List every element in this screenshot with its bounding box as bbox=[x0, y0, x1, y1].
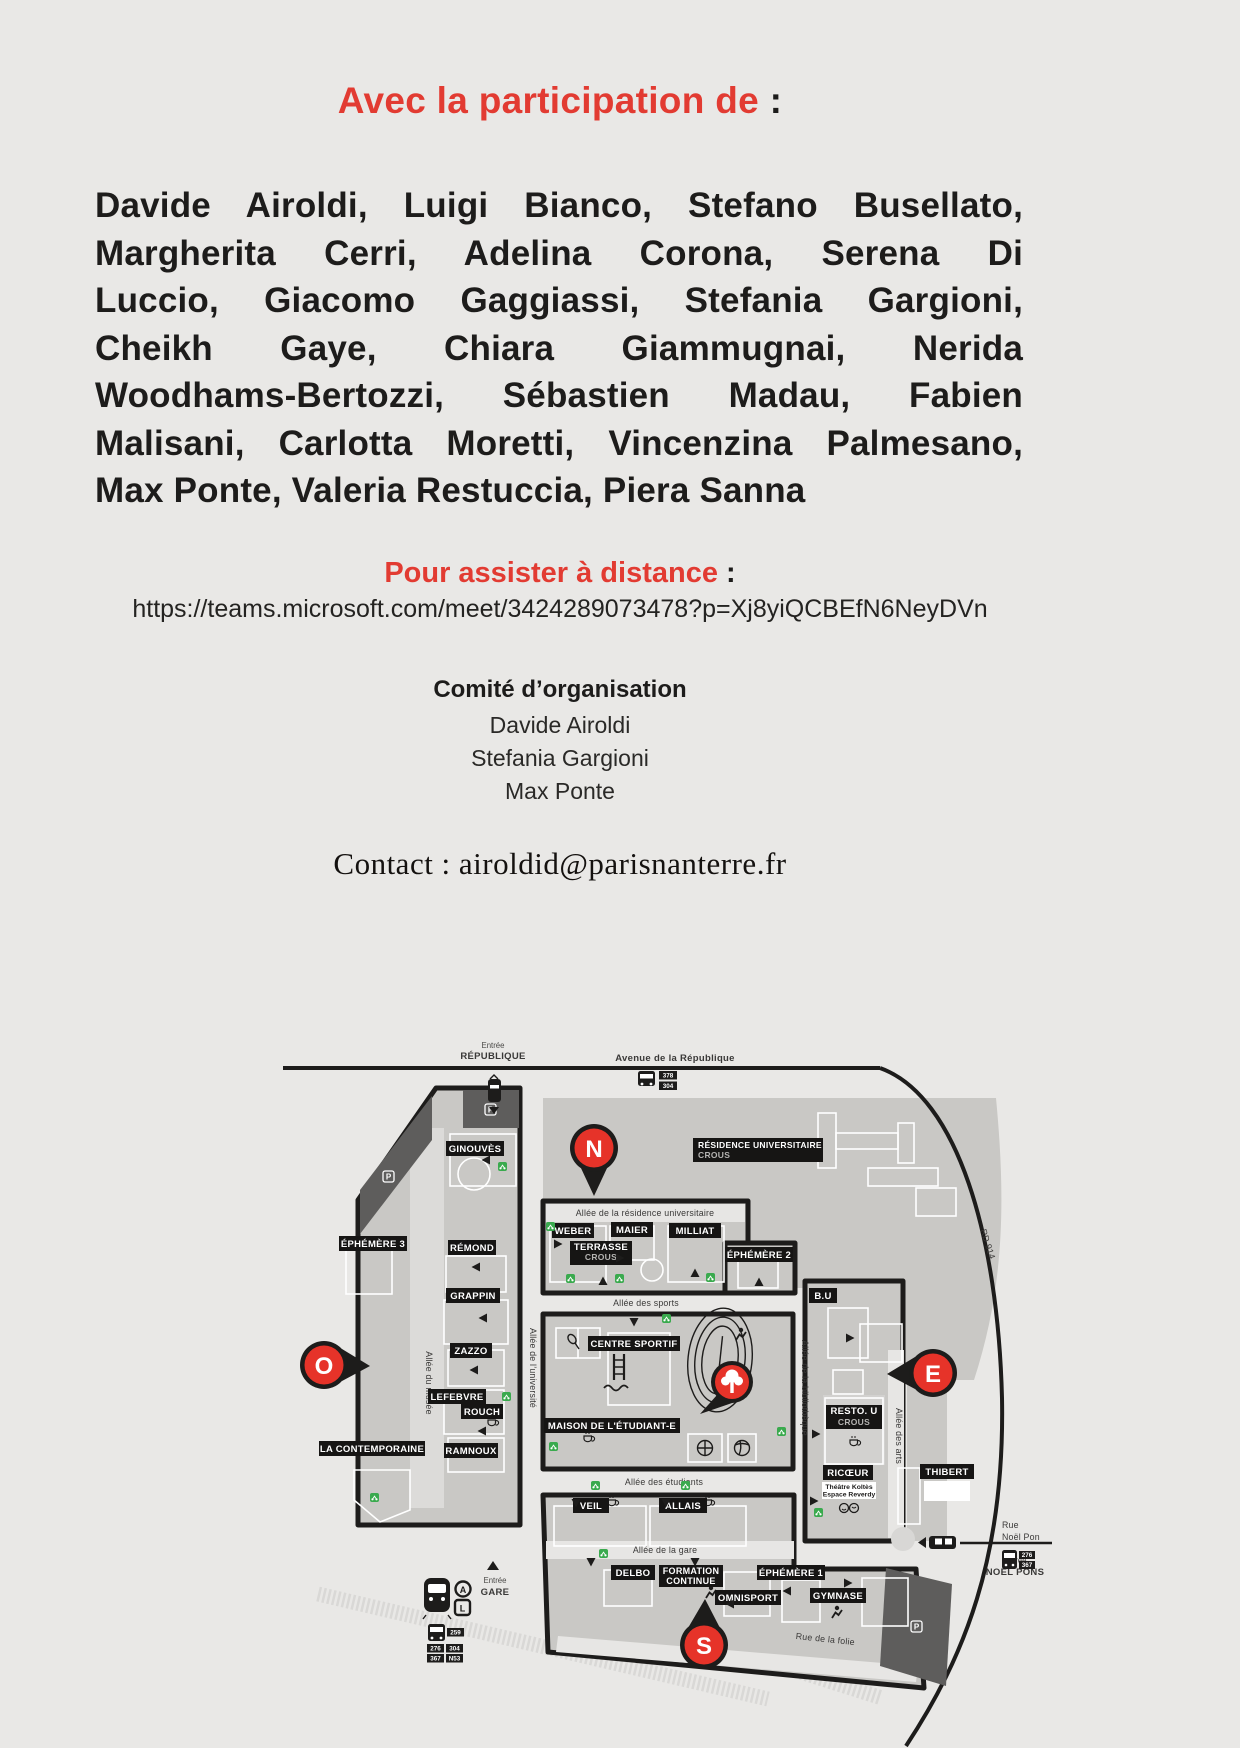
building-label-zazzo: ZAZZO bbox=[450, 1343, 492, 1358]
building-label-bu: B.U bbox=[809, 1288, 837, 1303]
svg-text:ZAZZO: ZAZZO bbox=[454, 1346, 487, 1357]
svg-text:N53: N53 bbox=[449, 1656, 461, 1663]
building-label-ephemere2: ÉPHÉMÈRE 2 bbox=[725, 1247, 793, 1262]
svg-text:FORMATION: FORMATION bbox=[663, 1566, 720, 1576]
svg-text:L: L bbox=[460, 1604, 466, 1614]
building-label-maier: MAIER bbox=[611, 1222, 653, 1237]
building-label-residence-crous: RÉSIDENCE UNIVERSITAIRECROUS bbox=[693, 1138, 823, 1162]
svg-text:MAIER: MAIER bbox=[616, 1225, 648, 1236]
svg-text:ÉPHÉMÈRE 2: ÉPHÉMÈRE 2 bbox=[727, 1250, 791, 1261]
participants-line: Luccio, Giacomo Gaggiassi, Stefania Garg… bbox=[95, 277, 1023, 325]
street-avenue-republique: Avenue de la République bbox=[615, 1053, 735, 1064]
svg-text:RÉSIDENCE UNIVERSITAIRE: RÉSIDENCE UNIVERSITAIRE bbox=[698, 1140, 822, 1150]
street-allee-musee: Allée du musée bbox=[424, 1351, 434, 1414]
participants-line: Cheikh Gaye, Chiara Giammugnai, Nerida bbox=[95, 325, 1023, 373]
svg-text:ROUCH: ROUCH bbox=[464, 1407, 500, 1418]
page-title: Avec la participation de : bbox=[95, 80, 1025, 122]
svg-text:276: 276 bbox=[430, 1646, 441, 1653]
svg-text:CONTINUE: CONTINUE bbox=[666, 1576, 715, 1586]
participants-line: Max Ponte, Valeria Restuccia, Piera Sann… bbox=[95, 467, 1023, 515]
committee-member: Stefania Gargioni bbox=[95, 745, 1025, 772]
svg-text:GYMNASE: GYMNASE bbox=[813, 1591, 863, 1602]
street-allee-bibliotheque: Allée de la bibliothèque bbox=[800, 1340, 810, 1436]
street-allee-gare: Allée de la gare bbox=[633, 1545, 697, 1555]
building-label-ramnoux: RAMNOUX bbox=[444, 1443, 498, 1458]
committee-member: Davide Airoldi bbox=[95, 712, 1025, 739]
svg-text:VEIL: VEIL bbox=[580, 1501, 602, 1512]
rer-a-icon: A bbox=[456, 1582, 471, 1597]
svg-text:N: N bbox=[585, 1136, 602, 1163]
svg-text:P: P bbox=[386, 1173, 392, 1182]
east-strip-ground bbox=[907, 1298, 947, 1541]
svg-text:276: 276 bbox=[1022, 1552, 1033, 1559]
building-label-omnisport: OMNISPORT bbox=[715, 1590, 781, 1605]
street-allee-residence: Allée de la résidence universitaire bbox=[576, 1208, 715, 1218]
svg-text:WEBER: WEBER bbox=[555, 1226, 592, 1237]
svg-text:304: 304 bbox=[663, 1083, 674, 1090]
svg-text:B.U: B.U bbox=[814, 1291, 831, 1302]
page-title-colon: : bbox=[759, 80, 782, 121]
street-allee-sports: Allée des sports bbox=[613, 1298, 679, 1308]
building-label-weber: WEBER bbox=[552, 1223, 594, 1238]
ligne-l-icon: L bbox=[455, 1600, 470, 1615]
svg-text:CROUS: CROUS bbox=[698, 1150, 730, 1160]
svg-text:RAMNOUX: RAMNOUX bbox=[445, 1446, 497, 1457]
building-label-centre-sportif: CENTRE SPORTIF bbox=[588, 1336, 680, 1351]
svg-text:RÉMOND: RÉMOND bbox=[450, 1243, 494, 1254]
svg-text:OMNISPORT: OMNISPORT bbox=[718, 1593, 778, 1604]
basketball-icon bbox=[698, 1441, 713, 1456]
street-rue-noel-pons: Rue bbox=[1002, 1520, 1019, 1530]
street-entree-republique: RÉPUBLIQUE bbox=[460, 1051, 525, 1062]
participants-line: Malisani, Carlotta Moretti, Vincenzina P… bbox=[95, 420, 1023, 468]
building-label-delbo: DELBO bbox=[611, 1565, 655, 1580]
street-allee-universite: Allée de l’université bbox=[528, 1328, 538, 1408]
building-label-lefebvre: LEFEBVRE bbox=[428, 1389, 486, 1404]
svg-text:A: A bbox=[460, 1585, 467, 1595]
svg-text:ÉPHÉMÈRE 1: ÉPHÉMÈRE 1 bbox=[759, 1568, 824, 1579]
street-allee-etudiants: Allée des étudiants bbox=[625, 1477, 704, 1487]
teams-meeting-url: https://teams.microsoft.com/meet/3424289… bbox=[60, 595, 1060, 624]
building-label-remond: RÉMOND bbox=[448, 1240, 496, 1255]
svg-text:CROUS: CROUS bbox=[585, 1252, 617, 1262]
bus-icon bbox=[1002, 1550, 1017, 1569]
svg-text:LA CONTEMPORAINE: LA CONTEMPORAINE bbox=[320, 1444, 424, 1455]
svg-text:P: P bbox=[914, 1623, 920, 1632]
building-label-milliat: MILLIAT bbox=[669, 1223, 721, 1238]
svg-text:THIBERT: THIBERT bbox=[925, 1467, 968, 1478]
svg-text:DELBO: DELBO bbox=[616, 1568, 651, 1579]
page-title-text: Avec la participation de bbox=[338, 80, 759, 121]
roundabout bbox=[891, 1527, 915, 1551]
street-entree-gare: Entrée bbox=[484, 1576, 507, 1585]
svg-text:ÉPHÉMÈRE 3: ÉPHÉMÈRE 3 bbox=[341, 1239, 405, 1250]
bus-icon bbox=[638, 1071, 655, 1086]
svg-text:304: 304 bbox=[449, 1646, 460, 1653]
building-label-ephemere1: ÉPHÉMÈRE 1 bbox=[757, 1565, 825, 1580]
svg-text:259: 259 bbox=[450, 1630, 461, 1637]
svg-text:RICŒUR: RICŒUR bbox=[827, 1468, 868, 1479]
participants-line: Woodhams-Bertozzi, Sébastien Madau, Fabi… bbox=[95, 372, 1023, 420]
svg-text:O: O bbox=[315, 1353, 334, 1380]
svg-text:RESTO. U: RESTO. U bbox=[830, 1406, 877, 1417]
campus-map: P P P Entrée RÉPUBLIQUE Avenue de la Rép… bbox=[258, 1038, 1058, 1748]
svg-text:367: 367 bbox=[430, 1656, 441, 1663]
svg-text:GRAPPIN: GRAPPIN bbox=[450, 1291, 495, 1302]
svg-text:MILLIAT: MILLIAT bbox=[676, 1226, 715, 1237]
remote-heading: Pour assister à distance : bbox=[95, 557, 1025, 590]
committee-member: Max Ponte bbox=[95, 778, 1025, 805]
svg-text:S: S bbox=[696, 1633, 712, 1660]
bus-icon bbox=[428, 1624, 445, 1641]
building-label-formation-continue: FORMATIONCONTINUE bbox=[659, 1565, 723, 1587]
contact-line: Contact : airoldid@parisnanterre.fr bbox=[95, 846, 1025, 882]
svg-text:CENTRE SPORTIF: CENTRE SPORTIF bbox=[590, 1339, 677, 1350]
participants-paragraph: Davide Airoldi, Luigi Bianco, Stefano Bu… bbox=[95, 182, 1023, 515]
building-label-grappin: GRAPPIN bbox=[446, 1288, 500, 1303]
building-label-terrasse-crous: TERRASSECROUS bbox=[570, 1241, 632, 1265]
street-entree-gare: GARE bbox=[481, 1587, 510, 1598]
building-label-rouch: ROUCH bbox=[461, 1404, 503, 1419]
svg-text:GINOUVÈS: GINOUVÈS bbox=[449, 1144, 502, 1155]
svg-text:378: 378 bbox=[663, 1073, 674, 1080]
building-label-thibert: THIBERT bbox=[920, 1464, 974, 1501]
svg-text:367: 367 bbox=[1022, 1562, 1033, 1569]
street-entree-republique: Entrée bbox=[482, 1041, 505, 1050]
svg-text:CROUS: CROUS bbox=[838, 1417, 870, 1427]
participants-line: Margherita Cerri, Adelina Corona, Serena… bbox=[95, 230, 1023, 278]
street-allee-arts: Allée des arts bbox=[894, 1408, 904, 1464]
participants-line: Davide Airoldi, Luigi Bianco, Stefano Bu… bbox=[95, 182, 1023, 230]
building-label-mde: MAISON DE L'ÉTUDIANT-E bbox=[544, 1418, 680, 1433]
bus-line-badges: 378 304 bbox=[659, 1071, 677, 1090]
building-label-gymnase: GYMNASE bbox=[810, 1588, 866, 1603]
building-label-ginouves: GINOUVÈS bbox=[446, 1141, 504, 1156]
street-rue-noel-pons: Noël Pon bbox=[1002, 1532, 1040, 1542]
building-label-ephemere3: ÉPHÉMÈRE 3 bbox=[339, 1236, 407, 1251]
svg-text:LEFEBVRE: LEFEBVRE bbox=[430, 1392, 483, 1403]
svg-text:Théâtre Koltès: Théâtre Koltès bbox=[825, 1484, 872, 1491]
building-label-ricoeur: RICŒURThéâtre KoltèsEspace Reverdy bbox=[822, 1465, 876, 1499]
entree-gare-arrow bbox=[487, 1561, 499, 1570]
svg-text:E: E bbox=[925, 1361, 941, 1388]
svg-text:Espace Reverdy: Espace Reverdy bbox=[823, 1492, 876, 1499]
building-label-restou-crous: RESTO. UCROUS bbox=[826, 1405, 882, 1429]
committee-title: Comité d’organisation bbox=[95, 676, 1025, 704]
building-label-contemporaine: LA CONTEMPORAINE bbox=[319, 1441, 425, 1456]
svg-text:MAISON DE L'ÉTUDIANT-E: MAISON DE L'ÉTUDIANT-E bbox=[548, 1421, 676, 1432]
svg-text:ALLAIS: ALLAIS bbox=[665, 1501, 701, 1512]
